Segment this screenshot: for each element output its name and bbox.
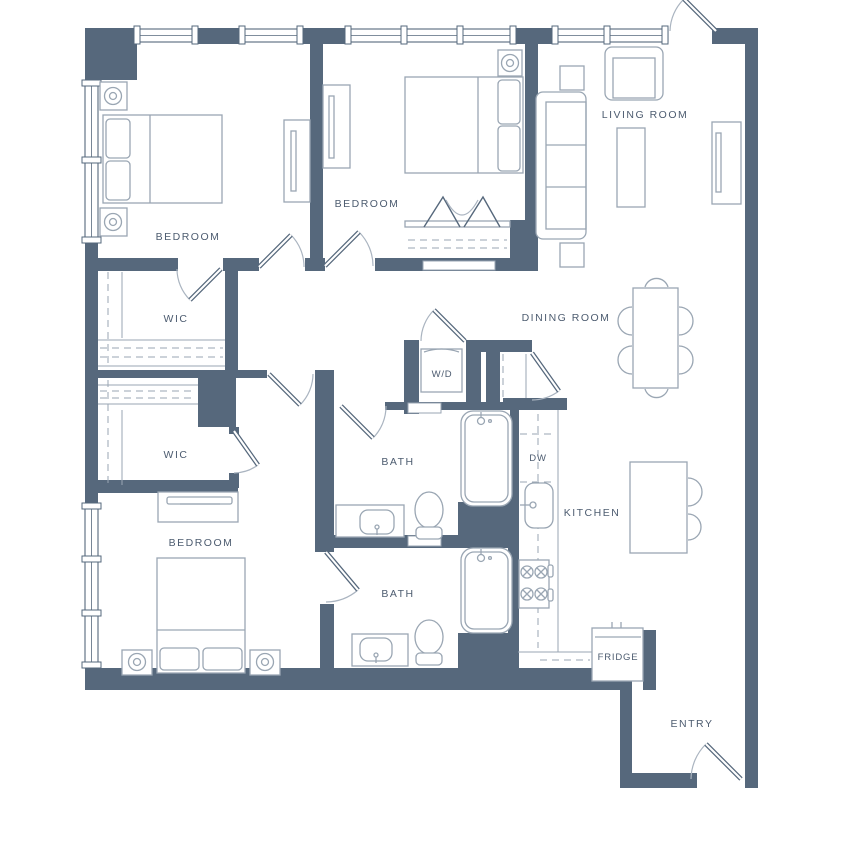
room-label-wic-1: WIC	[164, 313, 189, 325]
fridge-label: FRIDGE	[598, 652, 639, 663]
side-table	[560, 66, 584, 90]
dining-chair	[645, 389, 668, 398]
door-bedroom-2	[325, 232, 373, 266]
room-label-bedroom-1: BEDROOM	[156, 231, 221, 243]
dining-chair	[679, 346, 693, 374]
room-label-bath-2: BATH	[381, 588, 414, 600]
nightstand	[100, 82, 127, 110]
room-bedroom-1: BEDROOM	[100, 82, 310, 243]
window	[82, 503, 101, 668]
room-dining-room: DINING ROOM	[522, 278, 693, 397]
door-balcony	[670, 0, 716, 31]
sink-vanity	[352, 634, 408, 666]
dining-chair	[679, 307, 693, 335]
island-stool	[688, 514, 701, 540]
room-label-dining-room: DINING ROOM	[522, 312, 611, 324]
room-label-bath-1: BATH	[381, 456, 414, 468]
nightstand	[498, 50, 522, 76]
room-wic-2: WIC	[98, 380, 198, 487]
window	[239, 26, 303, 44]
door-hall-vestibule	[269, 374, 313, 405]
bathtub	[461, 548, 512, 633]
door-hall-dining	[532, 353, 559, 400]
armchair	[605, 47, 663, 100]
dishwasher-label: DW	[529, 453, 546, 464]
kitchen-sink	[520, 483, 553, 528]
double-bed	[157, 558, 245, 673]
nightstand	[122, 650, 152, 675]
window	[552, 26, 668, 44]
island-stool	[688, 478, 702, 506]
coffee-table	[617, 128, 645, 207]
dresser-tv	[284, 120, 310, 202]
dining-chair	[645, 278, 668, 287]
stove	[519, 560, 553, 608]
floor-plan: BEDROOM BEDROOM LIVING ROOM WIC WI	[0, 0, 844, 844]
door-entry	[691, 744, 741, 779]
room-label-bedroom-2: BEDROOM	[335, 198, 400, 210]
door-wic-2	[234, 431, 258, 473]
window	[345, 26, 516, 44]
dining-chair	[618, 346, 632, 374]
toilet	[415, 620, 443, 665]
sofa	[536, 92, 586, 239]
room-kitchen: DW FRIDGE KITCHEN	[518, 410, 702, 681]
dining-chair	[618, 307, 632, 335]
double-bed	[405, 77, 523, 173]
toilet	[415, 492, 443, 539]
door-wic-1	[177, 269, 221, 300]
door-bath-2	[326, 552, 358, 602]
room-label-entry: ENTRY	[671, 718, 714, 730]
kitchen-island	[630, 462, 687, 553]
double-bed	[103, 115, 222, 203]
bathtub	[461, 411, 512, 506]
dresser-tv	[323, 85, 350, 168]
dresser-tv	[158, 492, 238, 522]
nightstand	[250, 650, 280, 675]
door-washer-dryer	[421, 310, 465, 341]
washer-dryer-label: W/D	[432, 369, 453, 380]
side-table	[560, 243, 584, 267]
door-bedroom-1	[259, 235, 304, 267]
nightstand	[100, 208, 127, 236]
room-label-bedroom-3: BEDROOM	[169, 537, 234, 549]
window	[134, 26, 198, 44]
room-bedroom-2: BEDROOM	[323, 50, 523, 248]
dining-table	[633, 288, 678, 388]
door-bath-1	[341, 406, 386, 438]
window	[82, 80, 101, 243]
room-label-wic-2: WIC	[164, 449, 189, 461]
room-bedroom-3: BEDROOM	[122, 492, 280, 675]
tv-console	[712, 122, 741, 204]
sink-vanity	[336, 505, 404, 537]
room-entry: ENTRY	[671, 718, 714, 730]
room-label-living-room: LIVING ROOM	[602, 109, 689, 121]
closet-bifold-doors	[405, 197, 510, 248]
room-label-kitchen: KITCHEN	[564, 507, 621, 519]
room-living-room: LIVING ROOM	[536, 47, 741, 267]
